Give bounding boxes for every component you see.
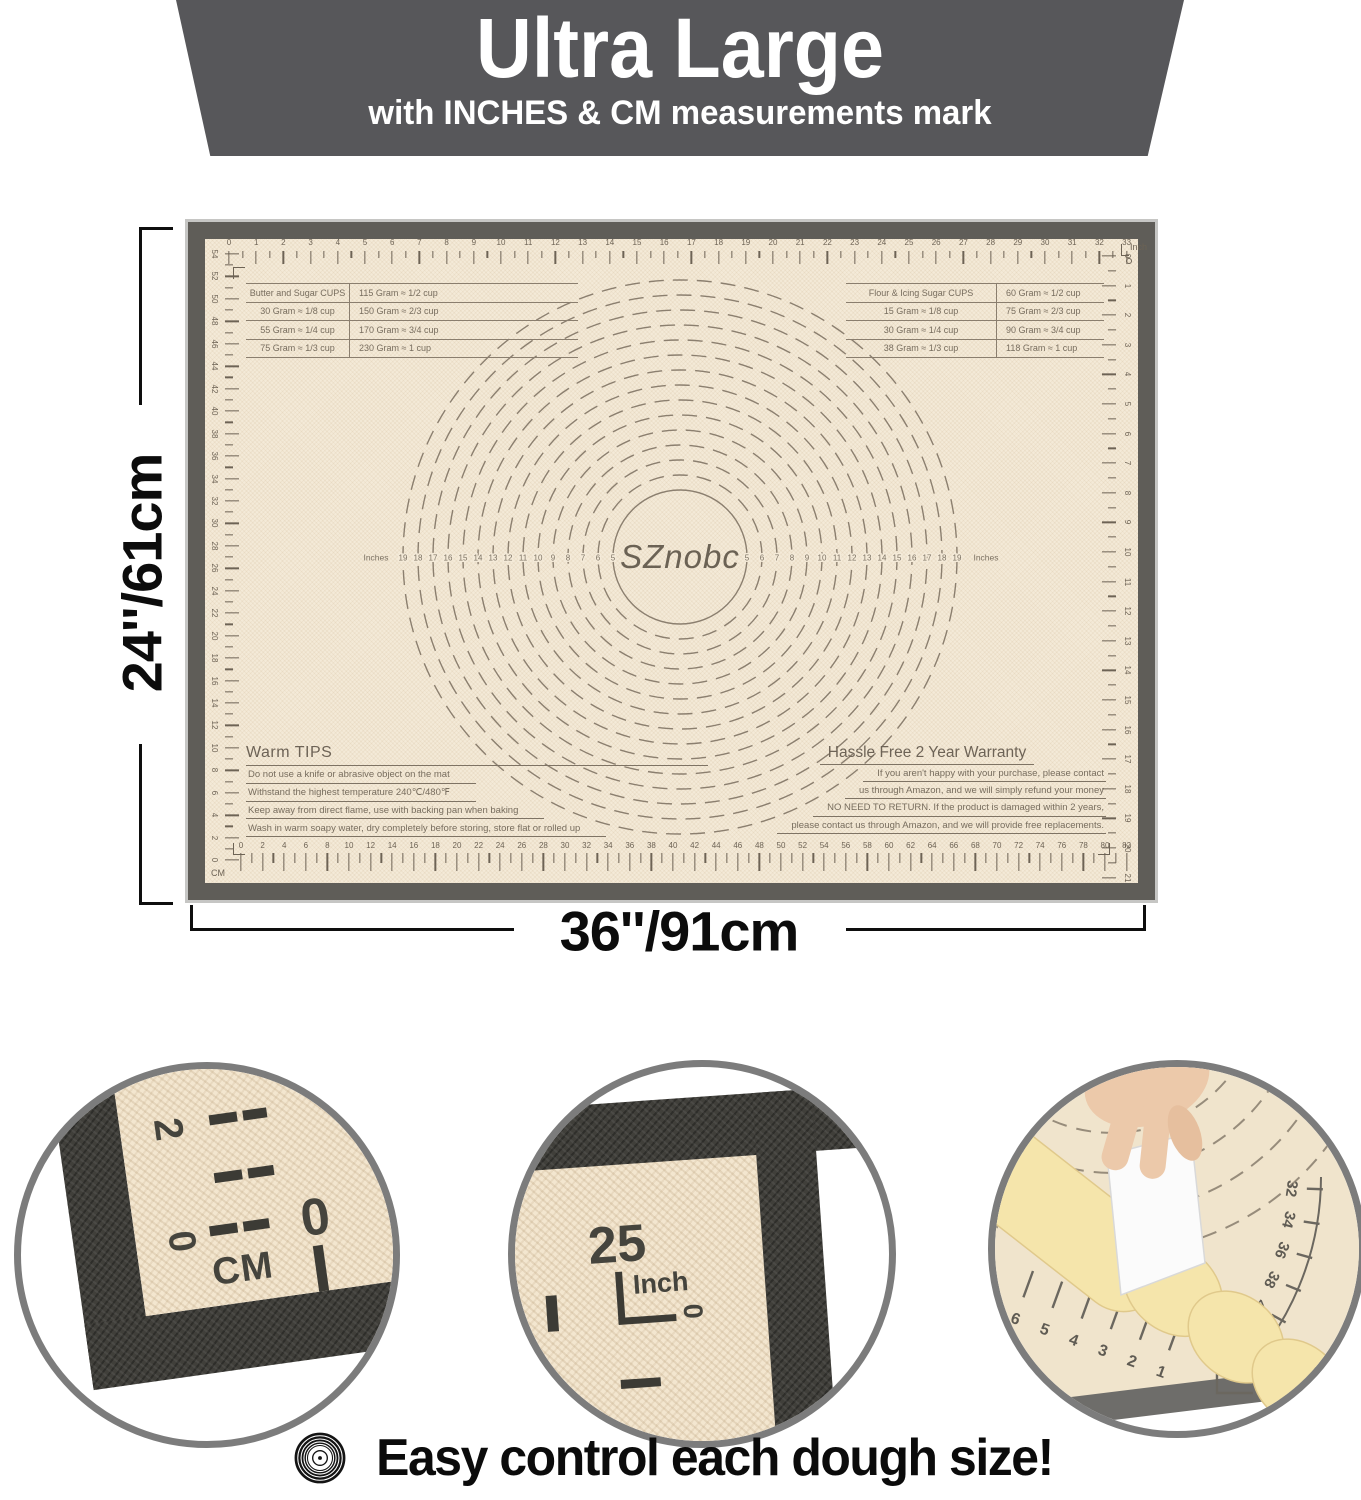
conversion-row: 30 Gram ≈ 1/4 cup90 Gram ≈ 3/4 cup (846, 321, 1104, 340)
ruler-tick (1108, 655, 1116, 656)
conversion-row: Flour & Icing Sugar CUPS60 Gram ≈ 1/2 cu… (846, 284, 1104, 303)
ruler-number: 13 (1123, 630, 1131, 652)
ruler-tick (1108, 418, 1116, 419)
conversion-row: Butter and Sugar CUPS115 Gram ≈ 1/2 cup (246, 284, 578, 303)
corner-bracket-icon (1098, 843, 1110, 855)
ruler-tick (1108, 477, 1116, 478)
width-dimension-line (190, 928, 514, 931)
cm-corner-view: 2 0 CM 0 (14, 1062, 400, 1448)
warranty-line: NO NEED TO RETURN. If the product is dam… (813, 799, 1106, 816)
ruler-number: 15 (1123, 689, 1131, 711)
registration-dot-icon (1126, 258, 1132, 264)
ruler-number: 20 (1123, 837, 1131, 859)
width-dimension-cap (190, 905, 193, 931)
ruler-tick (1102, 433, 1116, 434)
inset-dough-photo: 32343638404244 654321 0 (988, 1060, 1361, 1438)
ruler-tick (1102, 581, 1116, 582)
conversion-row: 38 Gram ≈ 1/3 cup118 Gram ≈ 1 cup (846, 340, 1104, 359)
inch-unit-label: Inch (1130, 243, 1147, 252)
corner-bracket-icon (233, 267, 245, 279)
inset-cm-corner-zoom: 2 0 CM 0 (14, 1062, 400, 1448)
dough-cutting-photo: 32343638404244 654321 0 (995, 1067, 1359, 1431)
brand-logo: SZnobc (620, 538, 740, 576)
ruler-number: 9 (1123, 511, 1131, 533)
ruler-tick (1102, 315, 1116, 316)
ruler-tick (1102, 670, 1116, 671)
ruler-tick (1108, 714, 1116, 715)
conversion-row: 15 Gram ≈ 1/8 cup75 Gram ≈ 2/3 cup (846, 303, 1104, 322)
caption-text: Easy control each dough size! (376, 1428, 1053, 1488)
conversion-row: 30 Gram ≈ 1/8 cup150 Gram ≈ 2/3 cup (246, 303, 578, 322)
ruler-tick (1102, 551, 1116, 552)
warranty-title: Hassle Free 2 Year Warranty (820, 744, 1034, 765)
banner-title: Ultra Large (216, 0, 1143, 96)
flour-sugar-conversion-table: Flour & Icing Sugar CUPS60 Gram ≈ 1/2 cu… (846, 283, 1104, 358)
height-dimension-cap (139, 902, 173, 905)
caption-row: Easy control each dough size! (0, 1428, 1361, 1488)
ruler-tick (1108, 448, 1116, 449)
banner: Ultra Large with INCHES & CM measurement… (176, 0, 1184, 156)
banner-subtitle: with INCHES & CM measurements mark (191, 94, 1169, 133)
ruler-tick (1108, 625, 1116, 626)
ruler-number: 7 (1123, 452, 1131, 474)
ruler-tick (1108, 300, 1116, 301)
height-dimension-cap (139, 227, 173, 230)
arc-ruler-number: 32 (1282, 1179, 1301, 1198)
ruler-tick (1102, 403, 1116, 404)
ruler-tick (1108, 270, 1116, 271)
butter-sugar-conversion-table: Butter and Sugar CUPS115 Gram ≈ 1/2 cup3… (246, 283, 578, 358)
ruler-number: 18 (1123, 778, 1131, 800)
warm-tip-line: Withstand the highest temperature 240℃/4… (246, 784, 476, 802)
ruler-tick (1102, 374, 1116, 375)
conversion-row: 55 Gram ≈ 1/4 cup170 Gram ≈ 3/4 cup (246, 321, 578, 340)
mat-surface: 5566778899101011111212131314141515161617… (205, 239, 1138, 883)
ruler-tick (1108, 744, 1116, 745)
width-dimension-label: 36''/91cm (560, 899, 799, 964)
ruler-tick (1102, 285, 1116, 286)
ruler-tick (1108, 803, 1116, 804)
ruler-tick (1102, 640, 1116, 641)
warranty-line: please contact us through Amazon, and we… (777, 817, 1106, 834)
corner-bracket-icon (1121, 244, 1129, 256)
warm-tip-line: Do not use a knife or abrasive object on… (246, 766, 476, 784)
ruler-tick (1108, 507, 1116, 508)
ruler-tick (1108, 566, 1116, 567)
warranty-block: Hassle Free 2 Year Warranty If you aren'… (748, 744, 1106, 834)
warranty-line: If you aren't happy with your purchase, … (863, 765, 1106, 782)
ruler-tick (1108, 537, 1116, 538)
bullseye-icon (294, 1432, 346, 1484)
ruler-number: 8 (1123, 482, 1131, 504)
ruler-tick (1108, 862, 1116, 863)
ruler-number: 14 (1123, 659, 1131, 681)
inset-inch-corner-zoom: 25 Inch 0 (508, 1060, 896, 1448)
ruler-tick (1102, 255, 1116, 256)
ruler-tick (1108, 359, 1116, 360)
ruler-number: 3 (1123, 334, 1131, 356)
ruler-tick (1108, 685, 1116, 686)
ruler-number: 2 (1123, 304, 1131, 326)
ruler-tick (1102, 522, 1116, 523)
ruler-tick (1108, 329, 1116, 330)
ruler-tick (1102, 344, 1116, 345)
ruler-tick (1102, 463, 1116, 464)
table-divider (996, 284, 997, 358)
ruler-number: 21 (1123, 867, 1131, 889)
warm-tips-title: Warm TIPS (246, 744, 708, 766)
height-dimension-line (139, 227, 142, 405)
ruler-tick (1108, 596, 1116, 597)
height-dimension-label: 24''/61cm (110, 454, 175, 693)
corner-bracket-icon (233, 843, 245, 855)
inch-corner-view: 25 Inch 0 (508, 1060, 896, 1448)
inch-zero-number: 0 (678, 1303, 706, 1320)
inch-25-number: 25 (586, 1217, 647, 1273)
ruler-tick (1108, 833, 1116, 834)
ruler-tick (1102, 729, 1116, 730)
ruler-tick (1102, 611, 1116, 612)
ruler-number: 12 (1123, 600, 1131, 622)
ruler-tick (1108, 389, 1116, 390)
ruler-number: 5 (1123, 393, 1131, 415)
warm-tip-line: Keep away from direct flame, use with ba… (246, 802, 544, 820)
ruler-number: 17 (1123, 748, 1131, 770)
ruler-number: 19 (1123, 807, 1131, 829)
ruler-number: 6 (1123, 423, 1131, 445)
ruler-number: 11 (1123, 571, 1131, 593)
conversion-row: 75 Gram ≈ 1/3 cup230 Gram ≈ 1 cup (246, 340, 578, 359)
baking-mat: 5566778899101011111212131314141515161617… (188, 222, 1155, 900)
ruler-number: 4 (1123, 363, 1131, 385)
ruler-number: 10 (1123, 541, 1131, 563)
height-dimension-line (139, 744, 142, 905)
ruler-tick (1108, 773, 1116, 774)
warm-tip-line: Wash in warm soapy water, dry completely… (246, 819, 606, 837)
ruler-tick (1102, 492, 1116, 493)
width-dimension-line (846, 928, 1146, 931)
cm-unit-label: CM (211, 869, 225, 878)
table-divider (349, 284, 350, 358)
warranty-line: us through Amazon, and we will simply re… (845, 782, 1106, 799)
ruler-number: 1 (1123, 275, 1131, 297)
ruler-tick (1102, 699, 1116, 700)
ruler-number: 16 (1123, 719, 1131, 741)
ruler-tick (1102, 877, 1116, 878)
inch-unit-label-zoom: Inch (632, 1268, 689, 1299)
cm-unit-label-zoom: CM (210, 1246, 276, 1292)
width-dimension-cap (1143, 905, 1146, 931)
